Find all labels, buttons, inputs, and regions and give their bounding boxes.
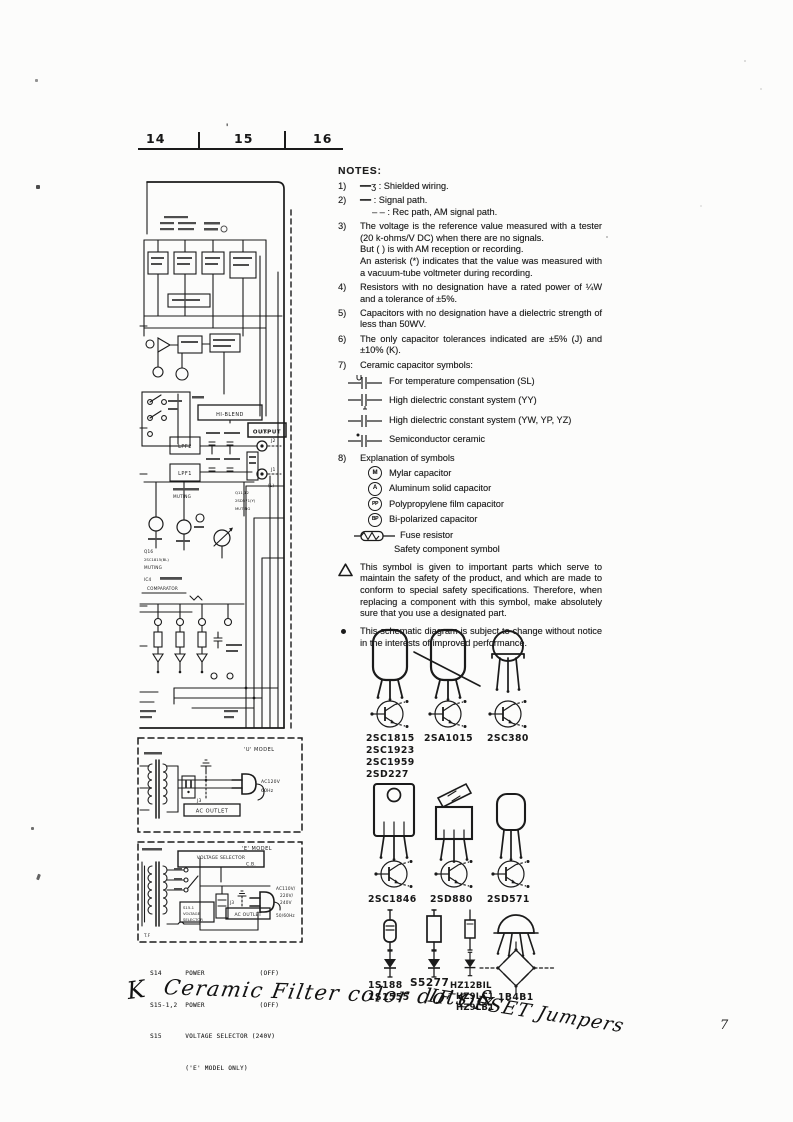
u-model-title: 'U' MODEL xyxy=(244,747,275,753)
notes-title: NOTES: xyxy=(338,166,602,178)
cap-symbol-row: High dielectric constant system (YY) xyxy=(348,392,602,410)
lpf2-label: LPF2 xyxy=(178,444,192,450)
symbol-row: M Mylar capacitor xyxy=(368,466,602,480)
note-item-1: 1) ━━ʒ : Shielded wiring. xyxy=(338,181,602,193)
cap-symbol-row: Semiconductor ceramic xyxy=(348,431,602,449)
scan-speck xyxy=(31,827,34,830)
semiconductor-figures-row2: 2SC1846 2SD880 2SD571 xyxy=(352,778,602,906)
warning-triangle-icon xyxy=(338,563,353,577)
lpf1-label: LPF1 xyxy=(178,471,192,477)
s15-ref: S15-1 xyxy=(183,905,195,910)
e-model-power-section: 'E' MODEL VOLTAGE SELECTOR C.B. S15-1 VO… xyxy=(134,838,306,946)
voltage-selector-label: VOLTAGE SELECTOR xyxy=(197,855,245,861)
u-model-j3-label: J3 xyxy=(196,798,202,804)
q11-ref: Q11,12 xyxy=(235,490,249,495)
scan-speck xyxy=(744,60,746,62)
scanned-page: 14 15 16 ' xyxy=(0,0,793,1122)
safety-symbol-heading: Safety component symbol xyxy=(394,544,602,556)
fuse-resistor-row: Fuse resistor xyxy=(354,529,602,543)
semiconductor-figures-row1: 2SC1815 2SC1923 2SC1959 2SD227 2SA1015 2… xyxy=(352,622,602,782)
ruler-tick xyxy=(198,132,200,148)
scan-speck xyxy=(700,205,702,207)
jack-j2-label: J2 xyxy=(270,438,276,444)
fuse-resistor-icon xyxy=(354,529,396,543)
ruler-mark-16: 16 xyxy=(313,131,332,146)
e-model-v1: AC110V/ xyxy=(276,886,296,891)
scan-speck xyxy=(760,88,762,90)
cap-symbol-row: For temperature compensation (SL) xyxy=(348,373,602,391)
u-model-power-section: 'U' MODEL J3 AC OUTLET AC120V 60Hz xyxy=(134,736,306,836)
scan-speck xyxy=(35,79,38,82)
q16-ref: Q16 xyxy=(144,549,153,554)
jack-l-label: (L) xyxy=(268,483,274,488)
note-item-5: 5) Capacitors with no designation have a… xyxy=(338,308,602,331)
ic4-ref: IC4 xyxy=(144,577,152,582)
hi-blend-label: HI-BLEND xyxy=(216,412,244,418)
safety-warning-note: This symbol is given to important parts … xyxy=(338,562,602,621)
voltage-selector-cb-label: C.B. xyxy=(246,862,256,868)
notes-section: NOTES: 1) ━━ʒ : Shielded wiring. 2) ━━ :… xyxy=(338,166,602,650)
q16-fn: MUTING xyxy=(144,565,162,570)
part-label: 2SC1846 xyxy=(368,894,417,905)
u-model-freq: 60Hz xyxy=(261,788,274,794)
page-number: 7 xyxy=(720,1018,728,1033)
e-model-v3: 240V xyxy=(280,900,292,905)
part-label: 2SD880 xyxy=(430,894,473,905)
part-label: 2SA1015 xyxy=(424,733,473,744)
ruler-mark-14: 14 xyxy=(146,131,165,146)
aluminum-capacitor-icon: A xyxy=(368,482,382,496)
symbol-row: PP Polypropylene film capacitor xyxy=(368,497,602,511)
u-model-voltage: AC120V xyxy=(261,779,281,785)
part-label: 2SC1923 xyxy=(366,745,415,756)
u-model-ac-outlet-label: AC OUTLET xyxy=(196,809,229,815)
legend-line: ('E' MODEL ONLY) xyxy=(150,1064,279,1075)
capacitor-yy-icon xyxy=(348,392,384,410)
symbol-row: A Aluminum solid capacitor xyxy=(368,482,602,496)
part-label: 2SC1815 xyxy=(366,733,415,744)
handwritten-mark-k: K xyxy=(125,975,147,1005)
polypropylene-capacitor-icon: PP xyxy=(368,497,382,511)
e-model-j3-label: J3 xyxy=(229,900,234,905)
part-label: 2SC380 xyxy=(487,733,529,744)
schematic-diagram: HI-BLEND OUTPUT LPF2 LPF1 (R) J2 J1 (L) … xyxy=(134,176,306,742)
ruler-mark-15: 15 xyxy=(234,131,253,146)
ruler-line xyxy=(138,148,343,150)
ic4-fn: COMPARATOR xyxy=(147,586,178,591)
cap-symbol-row: High dielectric constant system (YW, YP,… xyxy=(348,412,602,430)
note-item-6: 6) The only capacitor tolerances indicat… xyxy=(338,334,602,357)
e-model-ac-outlet-label: AC OUTLET xyxy=(234,912,261,918)
note-item-8: 8) Explanation of symbols M Mylar capaci… xyxy=(338,453,602,555)
scan-speck xyxy=(36,874,41,881)
stray-pen-mark: ' xyxy=(226,121,228,135)
jack-r-label: (R) xyxy=(262,429,269,434)
e-model-title: 'E' MODEL xyxy=(242,846,272,852)
part-label: 2SC1959 xyxy=(366,757,415,768)
note-item-7: 7) Ceramic capacitor symbols: For temper… xyxy=(338,360,602,451)
bipolarized-capacitor-icon: BP xyxy=(368,513,382,527)
note-item-4: 4) Resistors with no designation have a … xyxy=(338,282,602,305)
q16-part: 2SC1815(BL) xyxy=(144,557,169,562)
switch-legend: S14 POWER (OFF) S15-1,2 POWER (OFF) S15 … xyxy=(150,948,279,1095)
e-model-freq: 50/60Hz xyxy=(276,913,295,918)
scan-speck xyxy=(606,236,608,238)
s15-fn2: SELECTOR xyxy=(183,917,203,922)
capacitor-semiconductor-icon xyxy=(348,431,384,449)
legend-line: S15 VOLTAGE SELECTOR (240V) xyxy=(150,1032,279,1043)
part-label: 2SD571 xyxy=(487,894,530,905)
e-model-v2: 220V/ xyxy=(280,893,294,898)
note-item-2: 2) ━━ : Signal path. – – : Rec path, AM … xyxy=(338,195,602,218)
scan-speck xyxy=(36,185,40,189)
capacitor-yw-icon xyxy=(348,412,384,430)
tf-label: T.F xyxy=(143,933,151,938)
ruler-tick xyxy=(284,131,286,148)
muting-label: MUTING xyxy=(173,494,191,499)
mylar-capacitor-icon: M xyxy=(368,466,382,480)
q11-fn: MUTING xyxy=(235,506,250,511)
symbol-row: BP Bi-polarized capacitor xyxy=(368,513,602,527)
bullet-icon xyxy=(341,629,346,634)
s15-fn1: VOLTAGE xyxy=(183,911,201,916)
q11-part: 2SD571(Y) xyxy=(235,498,256,503)
capacitor-sl-icon xyxy=(348,373,384,391)
jack-j1-label: J1 xyxy=(270,467,276,473)
note-item-3: 3) The voltage is the reference value me… xyxy=(338,221,602,280)
